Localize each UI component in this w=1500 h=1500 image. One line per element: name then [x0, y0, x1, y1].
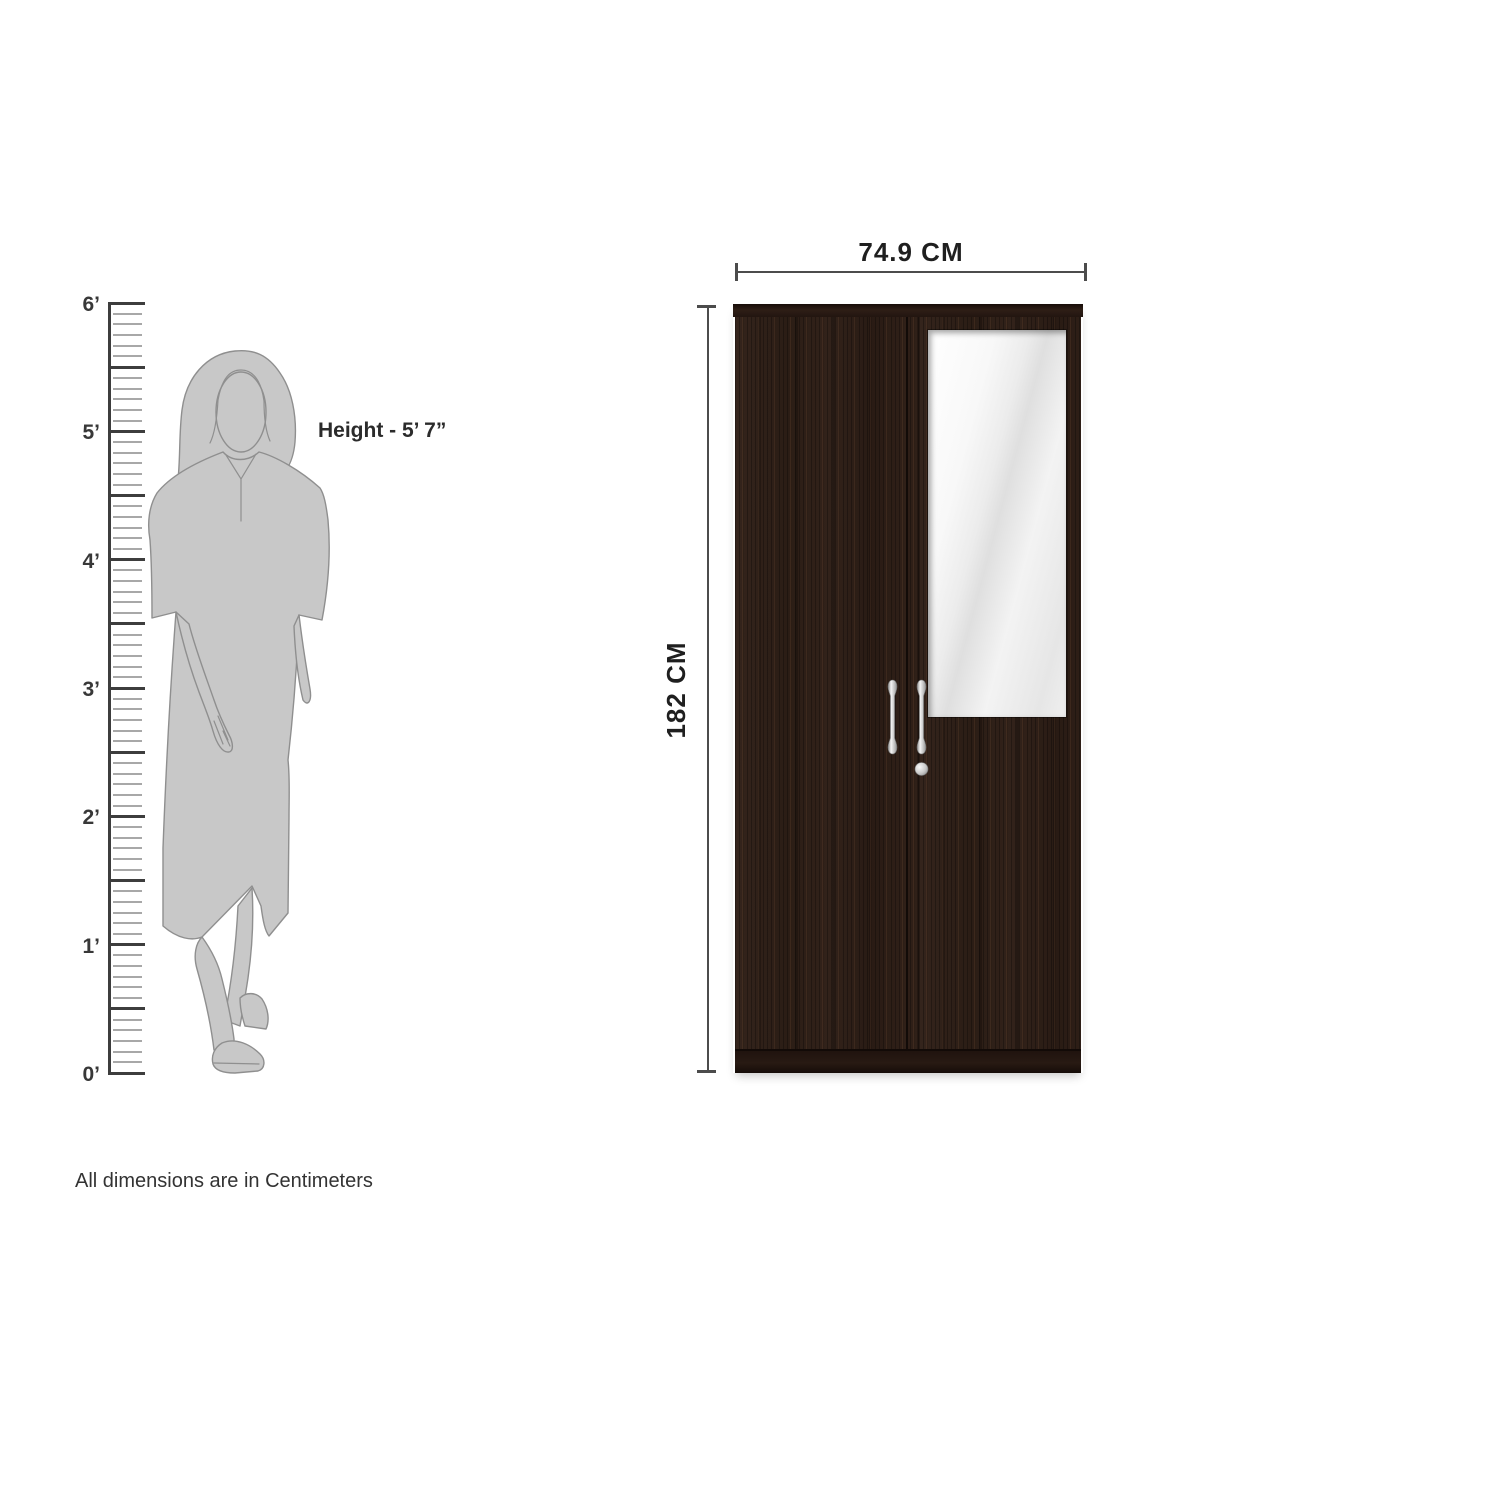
left-door-handle: [888, 680, 897, 754]
ruler-tick-minor: [113, 377, 142, 379]
person-figure: [140, 348, 340, 1075]
ruler-tick-minor: [113, 805, 142, 807]
ruler-tick-minor: [113, 505, 142, 507]
ruler-foot-label: 2’: [66, 805, 100, 831]
ruler-tick-minor: [113, 901, 142, 903]
ruler-tick-minor: [113, 441, 142, 443]
ruler-foot-label: 5’: [66, 420, 100, 446]
figure-shoe: [212, 1041, 264, 1073]
ruler-tick-minor: [113, 452, 142, 454]
ruler-foot-label: 4’: [66, 549, 100, 575]
ruler-tick-minor: [113, 548, 142, 550]
wardrobe-body: [735, 317, 1081, 1073]
ruler-tick-minor: [113, 473, 142, 475]
ruler-tick-minor: [113, 826, 142, 828]
ruler-tick-minor: [113, 644, 142, 646]
ruler-tick-minor: [113, 388, 142, 390]
ruler-tick-minor: [113, 612, 142, 614]
wardrobe-mirror: [928, 330, 1066, 717]
ruler-tick-minor: [113, 676, 142, 678]
ruler-tick-minor: [113, 708, 142, 710]
width-dimension-line: [735, 271, 1087, 273]
width-dimension-label: 74.9 CM: [811, 237, 1011, 268]
ruler-foot-label: 3’: [66, 677, 100, 703]
height-dimension-label: 182 CM: [661, 640, 691, 740]
ruler-tick-minor: [113, 740, 142, 742]
ruler-tick-minor: [113, 1061, 142, 1063]
ruler-tick-minor: [113, 847, 142, 849]
ruler-tick-minor: [113, 591, 142, 593]
ruler-foot-label: 1’: [66, 934, 100, 960]
wardrobe-crown: [733, 304, 1083, 317]
ruler-tick-minor: [113, 537, 142, 539]
ruler-tick-minor: [113, 655, 142, 657]
ruler-tick-minor: [113, 976, 142, 978]
wardrobe-illustration: [733, 304, 1083, 1073]
ruler-tick-minor: [113, 912, 142, 914]
ruler-tick-minor: [113, 398, 142, 400]
ruler-tick-minor: [113, 783, 142, 785]
ruler-tick-minor: [113, 869, 142, 871]
right-door-handle: [917, 680, 926, 754]
ruler-tick-minor: [113, 794, 142, 796]
ruler-tick-minor: [113, 527, 142, 529]
ruler-tick-minor: [113, 313, 142, 315]
figure-face: [216, 372, 266, 452]
ruler-tick-minor: [113, 1051, 142, 1053]
ruler-tick-minor: [113, 858, 142, 860]
ruler-tick-minor: [113, 933, 142, 935]
ruler-tick-minor: [113, 420, 142, 422]
ruler-tick-minor: [113, 634, 142, 636]
ruler-foot-label: 6’: [66, 292, 100, 318]
ruler-tick-minor: [113, 890, 142, 892]
door-hardware: [885, 677, 930, 782]
ruler-tick-minor: [113, 1019, 142, 1021]
ruler-tick-minor: [113, 666, 142, 668]
person-height-label: Height - 5’ 7”: [318, 419, 446, 443]
ruler-tick-minor: [113, 1040, 142, 1042]
product-dimension-diagram: 6’5’4’3’2’1’0’ Height - 5’ 7” 74.9 CM 18…: [0, 0, 1500, 1500]
wardrobe-plinth: [735, 1049, 1081, 1073]
ruler-tick-minor: [113, 569, 142, 571]
wardrobe-left-door: [735, 317, 906, 1049]
ruler-tick-minor: [113, 922, 142, 924]
ruler-tick-minor: [113, 997, 142, 999]
figure-front-leg: [195, 937, 234, 1050]
ruler-tick-minor: [113, 334, 142, 336]
door-lock-knob: [915, 763, 928, 776]
ruler-tick-minor: [113, 484, 142, 486]
ruler-tick-minor: [113, 409, 142, 411]
ruler-tick-minor: [113, 355, 142, 357]
figure-back-foot: [240, 994, 268, 1029]
ruler-tick-minor: [113, 462, 142, 464]
height-dimension-line: [707, 305, 709, 1073]
ruler-tick-minor: [113, 345, 142, 347]
ruler-tick-minor: [113, 965, 142, 967]
ruler-tick-minor: [113, 698, 142, 700]
ruler-tick-minor: [113, 730, 142, 732]
ruler-tick-minor: [113, 580, 142, 582]
ruler-tick-minor: [113, 323, 142, 325]
figure-right-arm: [294, 615, 311, 703]
ruler-tick-minor: [113, 762, 142, 764]
ruler-tick-minor: [113, 516, 142, 518]
ruler-tick-minor: [113, 954, 142, 956]
footnote-text: All dimensions are in Centimeters: [75, 1170, 373, 1193]
ruler-tick-minor: [113, 1029, 142, 1031]
ruler-tick-minor: [113, 719, 142, 721]
ruler-tick-minor: [113, 837, 142, 839]
ruler-tick-minor: [113, 986, 142, 988]
ruler-tick-minor: [113, 773, 142, 775]
ruler-tick-minor: [113, 601, 142, 603]
ruler-foot-label: 0’: [66, 1062, 100, 1088]
ruler-tick-major: [108, 302, 145, 305]
